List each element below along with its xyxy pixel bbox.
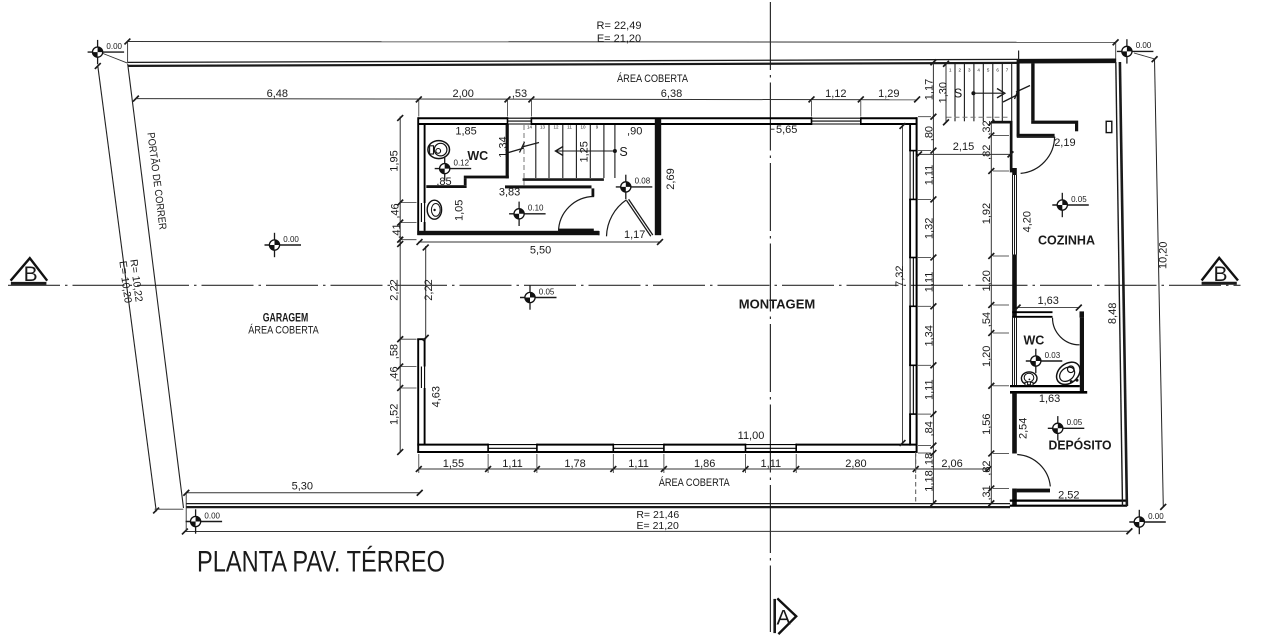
svg-text:1,25: 1,25: [579, 141, 591, 162]
svg-text:8,48: 8,48: [1107, 303, 1119, 325]
svg-text:,18: ,18: [924, 453, 936, 468]
svg-text:S: S: [954, 87, 962, 101]
svg-text:,46: ,46: [389, 366, 401, 381]
svg-text:1,32: 1,32: [924, 218, 936, 239]
svg-text:1,11: 1,11: [924, 272, 936, 293]
svg-text:1,11: 1,11: [924, 165, 936, 186]
svg-text:0.05: 0.05: [539, 287, 555, 296]
svg-text:ÁREA COBERTA: ÁREA COBERTA: [248, 324, 319, 337]
svg-text:7,32: 7,32: [894, 265, 906, 286]
svg-text:,90: ,90: [627, 126, 642, 138]
svg-text:5,50: 5,50: [530, 244, 551, 256]
svg-text:12: 12: [553, 125, 559, 130]
svg-text:R= 22,49: R= 22,49: [597, 20, 642, 32]
svg-text:1,55: 1,55: [443, 458, 464, 470]
svg-text:0.00: 0.00: [1148, 512, 1164, 521]
svg-text:10: 10: [580, 125, 586, 130]
svg-text:1,29: 1,29: [878, 88, 899, 100]
svg-text:2,54: 2,54: [1018, 418, 1030, 439]
svg-text:0.00: 0.00: [106, 42, 122, 51]
svg-text:1,20: 1,20: [981, 270, 993, 291]
svg-text:B: B: [1213, 263, 1227, 286]
svg-text:1,30: 1,30: [938, 82, 950, 103]
svg-text:0.00: 0.00: [283, 235, 299, 244]
svg-text:1,11: 1,11: [924, 379, 936, 400]
svg-text:0.05: 0.05: [1067, 418, 1083, 427]
svg-text:0.00: 0.00: [1136, 41, 1152, 50]
svg-text:COZINHA: COZINHA: [1038, 233, 1096, 248]
svg-text:,41: ,41: [391, 223, 403, 238]
svg-text:E= 21,20: E= 21,20: [637, 520, 679, 532]
svg-text:,32: ,32: [981, 120, 993, 135]
svg-text:WC: WC: [467, 149, 488, 163]
svg-text:1,85: 1,85: [455, 126, 476, 138]
svg-text:0.10: 0.10: [528, 204, 544, 213]
svg-text:0.08: 0.08: [635, 177, 651, 186]
svg-text:2,22: 2,22: [423, 279, 435, 300]
svg-text:,85: ,85: [436, 176, 451, 188]
svg-text:6,38: 6,38: [661, 88, 682, 100]
svg-text:,53: ,53: [512, 88, 527, 100]
svg-text:6,48: 6,48: [267, 88, 288, 100]
svg-text:1,52: 1,52: [389, 404, 401, 425]
svg-text:WC: WC: [1023, 334, 1044, 348]
svg-text:1,17: 1,17: [624, 229, 645, 241]
svg-text:0.00: 0.00: [204, 511, 220, 520]
svg-text:0.03: 0.03: [1045, 351, 1061, 360]
svg-text:,54: ,54: [981, 312, 993, 327]
svg-text:1,20: 1,20: [981, 346, 993, 367]
svg-text:14: 14: [527, 125, 533, 130]
svg-text:1,05: 1,05: [454, 200, 466, 221]
svg-text:10,20: 10,20: [1157, 241, 1170, 269]
svg-text:,82: ,82: [981, 145, 993, 160]
svg-text:ÁREA COBERTA: ÁREA COBERTA: [617, 72, 689, 85]
svg-text:GARAGEM: GARAGEM: [263, 311, 309, 325]
svg-text:1,86: 1,86: [694, 458, 715, 470]
svg-text:,31: ,31: [981, 485, 993, 500]
svg-text:S: S: [619, 145, 627, 159]
svg-text:,80: ,80: [924, 126, 936, 141]
svg-text:2,00: 2,00: [452, 88, 473, 100]
svg-text:1,11: 1,11: [502, 458, 523, 470]
svg-text:3,83: 3,83: [499, 186, 520, 198]
svg-text:2,80: 2,80: [845, 458, 866, 470]
svg-text:MONTAGEM: MONTAGEM: [739, 298, 816, 312]
svg-text:ÁREA COBERTA: ÁREA COBERTA: [659, 476, 731, 489]
svg-text:,82: ,82: [981, 460, 993, 475]
svg-text:13: 13: [540, 125, 546, 130]
svg-text:2,19: 2,19: [1054, 137, 1075, 149]
svg-text:5,65: 5,65: [776, 124, 797, 136]
svg-text:1,17: 1,17: [924, 79, 936, 100]
svg-text:1,56: 1,56: [981, 413, 993, 434]
svg-text:5,30: 5,30: [292, 480, 313, 492]
svg-text:,58: ,58: [389, 344, 401, 359]
svg-text:4,63: 4,63: [430, 386, 442, 407]
svg-text:,84: ,84: [924, 421, 936, 436]
svg-text:11,00: 11,00: [738, 430, 765, 442]
svg-text:2,69: 2,69: [665, 168, 677, 189]
svg-text:2,22: 2,22: [389, 279, 401, 300]
svg-text:2,52: 2,52: [1058, 489, 1079, 501]
svg-text:1,34: 1,34: [498, 136, 510, 157]
svg-text:PLANTA PAV. TÉRREO: PLANTA PAV. TÉRREO: [197, 546, 445, 579]
svg-text:E= 21,20: E= 21,20: [597, 33, 641, 45]
svg-text:0.05: 0.05: [1071, 195, 1087, 204]
svg-text:1,63: 1,63: [1037, 295, 1058, 307]
svg-text:1,92: 1,92: [981, 203, 993, 224]
svg-text:1,78: 1,78: [564, 458, 585, 470]
svg-text:1,63: 1,63: [1039, 393, 1060, 405]
svg-text:1,95: 1,95: [389, 150, 401, 171]
svg-text:1,11: 1,11: [628, 458, 649, 470]
svg-text:1,11: 1,11: [761, 458, 782, 470]
svg-text:2,15: 2,15: [953, 141, 974, 153]
svg-text:,46: ,46: [389, 203, 401, 218]
svg-text:4,20: 4,20: [1021, 211, 1033, 232]
svg-text:A: A: [776, 607, 790, 630]
svg-text:11: 11: [567, 125, 572, 130]
svg-text:1,12: 1,12: [825, 88, 846, 100]
svg-text:1,18: 1,18: [924, 470, 936, 491]
svg-text:1,34: 1,34: [924, 325, 936, 346]
svg-text:B: B: [24, 263, 38, 286]
svg-text:2,06: 2,06: [941, 458, 962, 470]
svg-text:DEPÓSITO: DEPÓSITO: [1049, 437, 1112, 452]
